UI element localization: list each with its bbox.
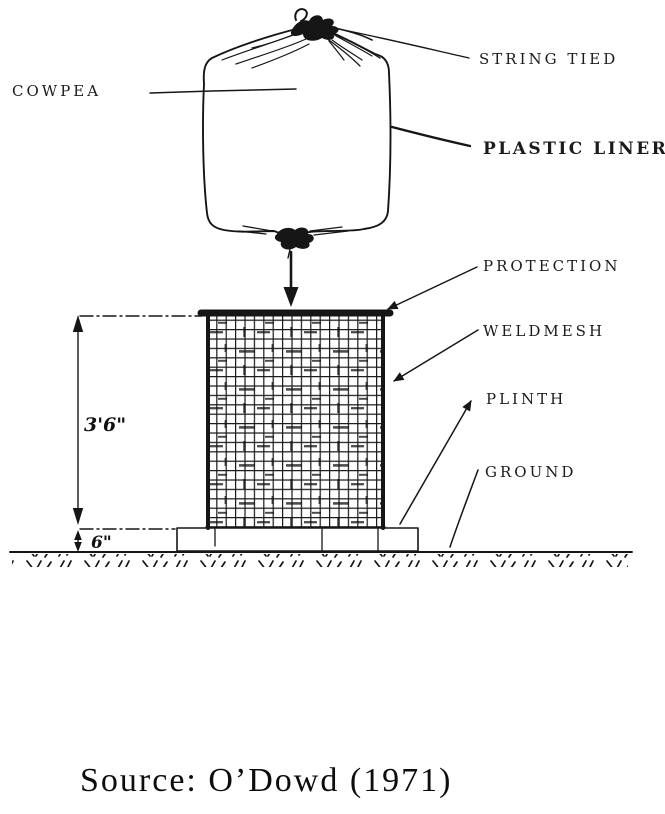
weldmesh-cage [201, 313, 390, 528]
source-caption: Source: O’Dowd (1971) [80, 762, 453, 799]
plinth-leader [400, 401, 471, 524]
label-string-tied: STRING TIED [479, 50, 618, 68]
cowpea-leader [150, 89, 296, 93]
string-knot-top [291, 9, 380, 66]
label-cowpea: COWPEA [12, 82, 101, 100]
diagram-canvas: 3'6" 6" COWPEA STRING TIED PLASTIC LINER… [0, 0, 665, 814]
cage-height-dimension: 3'6" [84, 414, 126, 436]
label-protection: PROTECTION [483, 257, 620, 275]
plastic-liner-leader [392, 127, 470, 146]
plastic-liner-bag [203, 9, 390, 258]
bag-fold-lines [222, 33, 372, 68]
label-plastic-liner: PLASTIC LINER [483, 139, 665, 159]
scanned-diagram-page: 3'6" 6" COWPEA STRING TIED PLASTIC LINER… [0, 0, 665, 814]
label-ground: GROUND [485, 463, 576, 481]
ground-leader [450, 470, 478, 547]
protection-leader [388, 267, 477, 309]
plinth-height-dimension: 6" [91, 533, 112, 553]
label-weldmesh: WELDMESH [483, 322, 605, 340]
dimension-lines: 3'6" 6" [73, 315, 202, 553]
weldmesh-leader [394, 330, 478, 381]
ground-line [10, 552, 632, 567]
down-arrow [284, 252, 299, 307]
label-plinth: PLINTH [486, 390, 566, 408]
plinth-block [177, 528, 418, 551]
ground-hatching [12, 554, 628, 567]
